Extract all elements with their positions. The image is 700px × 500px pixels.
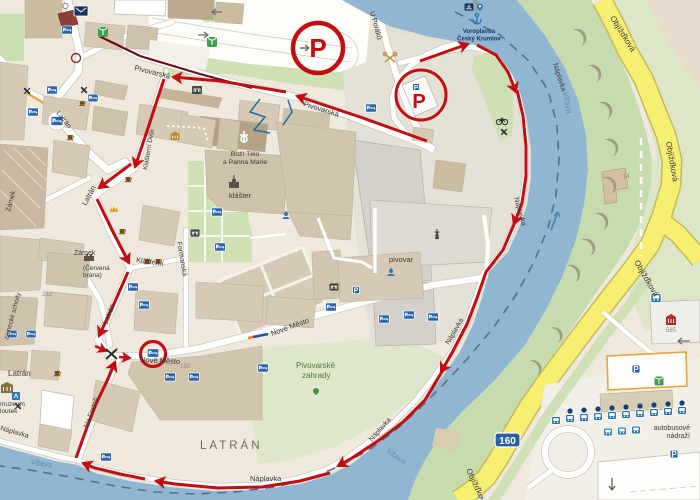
- svg-text:muzeum: muzeum: [0, 401, 25, 408]
- svg-text:Voroplavba: Voroplavba: [463, 29, 496, 35]
- svg-text:Pivovarské: Pivovarské: [296, 361, 336, 370]
- svg-text:LATRÁN: LATRÁN: [200, 439, 263, 452]
- svg-text:nádraží: nádraží: [667, 433, 690, 440]
- svg-text:loutek: loutek: [0, 408, 18, 415]
- svg-text:150: 150: [180, 364, 191, 370]
- svg-text:klášter: klášter: [229, 191, 252, 200]
- svg-text:pivovar: pivovar: [389, 255, 414, 264]
- svg-text:zahrady: zahrady: [302, 371, 330, 380]
- svg-text:Latrán: Latrán: [8, 369, 31, 378]
- svg-text:Boží Tělo: Boží Tělo: [231, 151, 260, 158]
- svg-text:Zámek: Zámek: [74, 250, 96, 257]
- svg-text:brána): brána): [83, 272, 102, 279]
- svg-text:Náplavka: Náplavka: [250, 474, 282, 483]
- svg-text:14: 14: [623, 174, 630, 180]
- svg-text:autobusové: autobusové: [654, 425, 690, 432]
- svg-text:P: P: [412, 91, 425, 113]
- svg-text:Český Krumlov: Český Krumlov: [457, 36, 501, 43]
- svg-text:P: P: [309, 33, 326, 63]
- svg-text:(Červená: (Červená: [83, 263, 110, 272]
- svg-text:a Panna Marie: a Panna Marie: [223, 159, 267, 166]
- svg-text:232: 232: [42, 292, 53, 298]
- svg-text:585: 585: [666, 328, 677, 334]
- svg-text:160: 160: [499, 436, 516, 447]
